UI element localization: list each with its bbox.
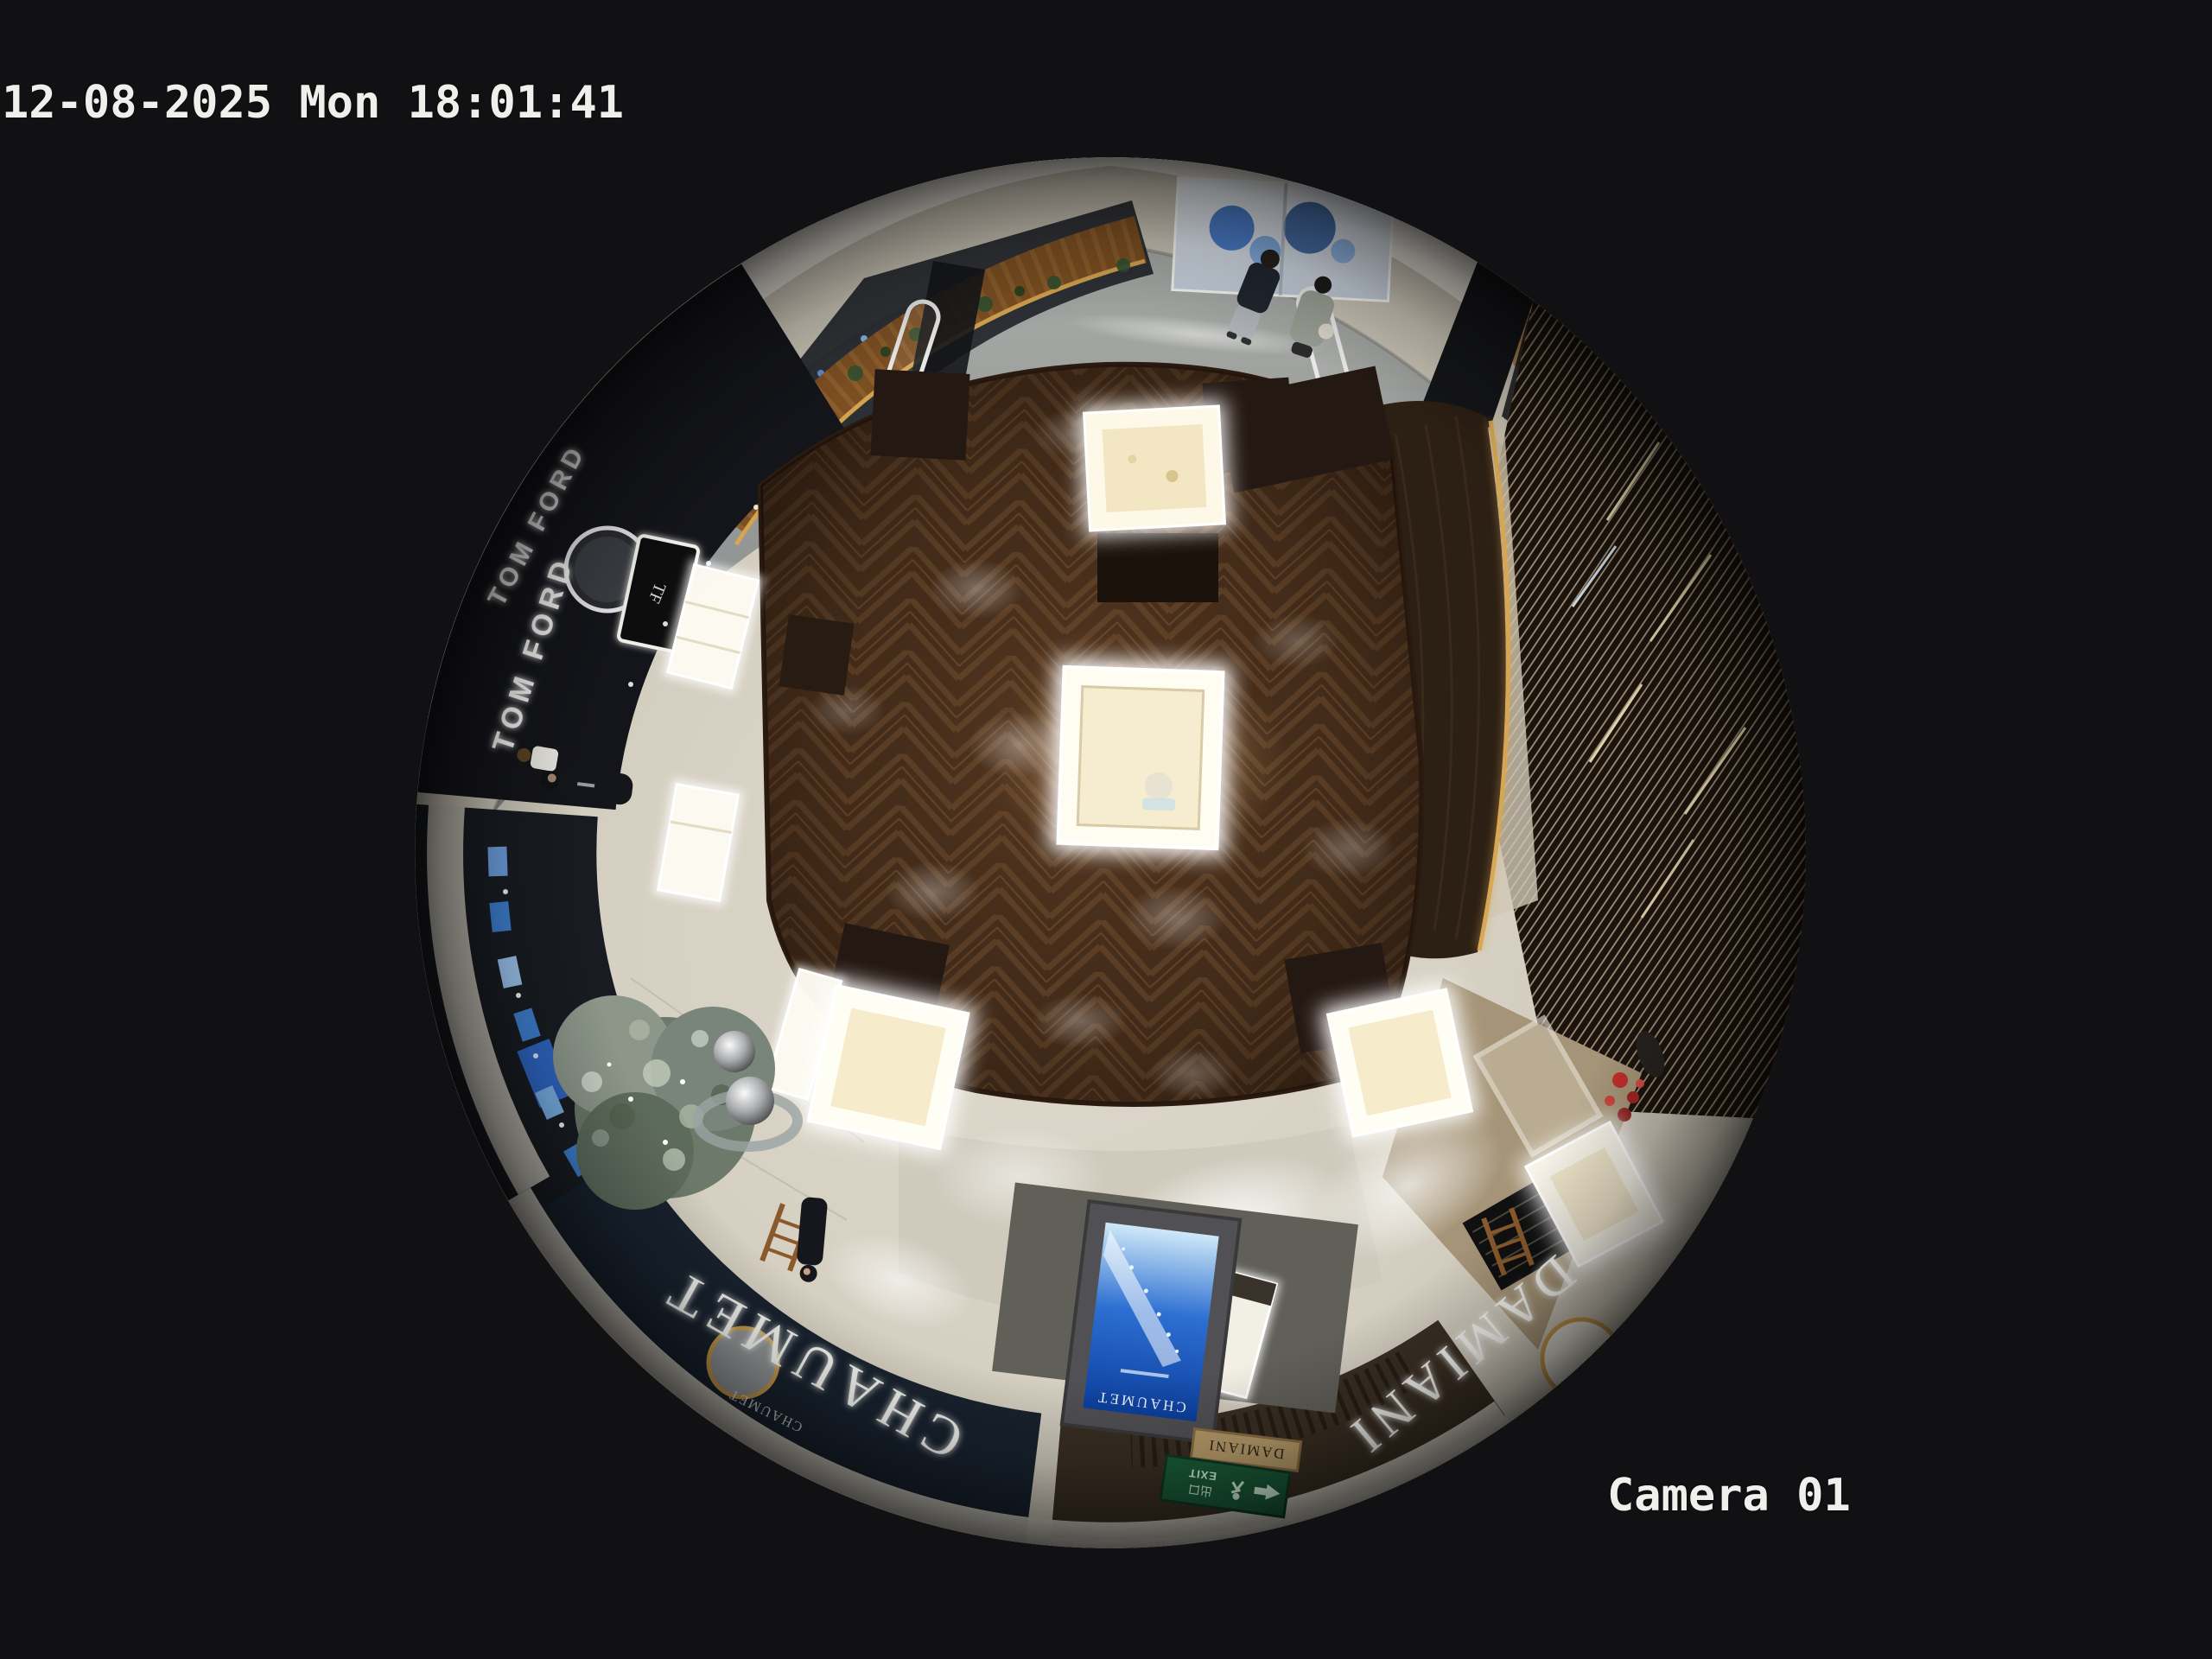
camera-label-osd: Camera 01	[1607, 1473, 1851, 1518]
fisheye-camera-view: TF TOM FORD TOM FORD	[415, 157, 1806, 1548]
cctv-frame: 12-08-2025 Mon 18:01:41	[0, 0, 2212, 1659]
fisheye-scene: TF TOM FORD TOM FORD	[415, 157, 1806, 1548]
timestamp-osd: 12-08-2025 Mon 18:01:41	[2, 80, 624, 125]
fisheye-vignette	[415, 157, 1806, 1548]
